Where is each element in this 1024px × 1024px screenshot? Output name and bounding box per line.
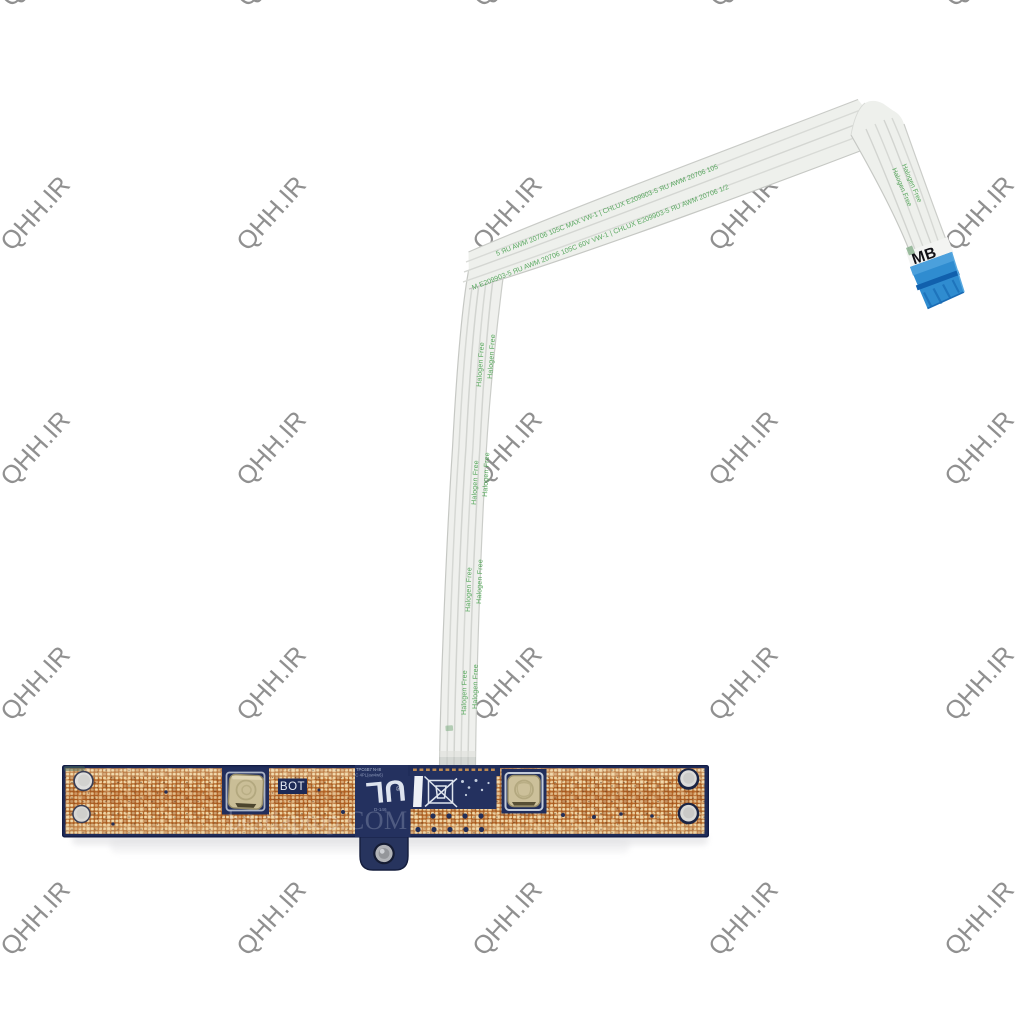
svg-text:Halogen Free: Halogen Free — [461, 670, 469, 715]
svg-text:TPC6B7 N-I8: TPC6B7 N-I8 — [356, 767, 382, 772]
svg-text:-C 4PL(aw4w6): -C 4PL(aw4w6) — [354, 773, 383, 778]
svg-text:BOT: BOT — [280, 781, 305, 793]
svg-text:Halogen Free: Halogen Free — [472, 664, 480, 709]
svg-text:bestlaptop.COM: bestlaptop.COM — [228, 806, 408, 835]
